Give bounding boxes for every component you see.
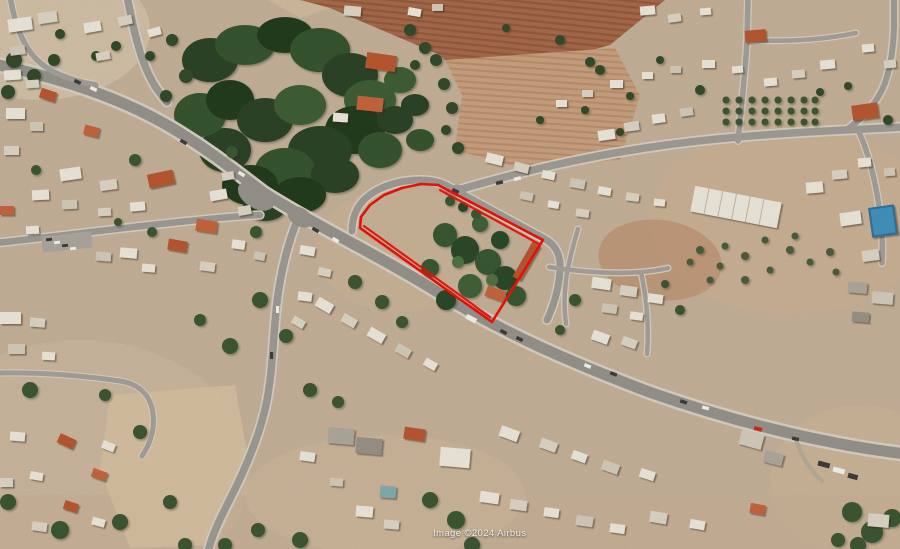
satellite-map-screenshot: Image ©2024 Airbus [0, 0, 900, 549]
satellite-grain-texture [0, 0, 900, 549]
satellite-map[interactable] [0, 0, 900, 549]
